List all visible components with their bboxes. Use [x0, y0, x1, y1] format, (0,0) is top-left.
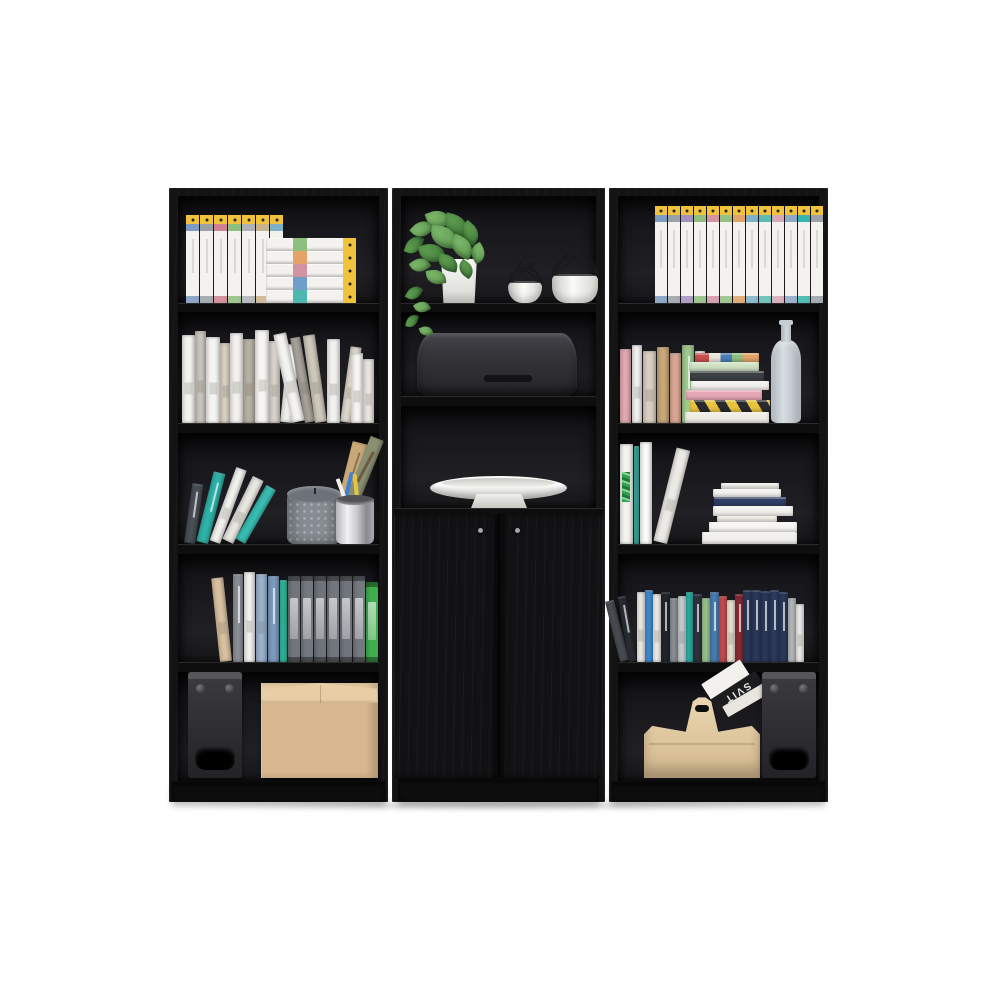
binder-label	[355, 598, 363, 639]
bookshelf-speaker-left	[188, 672, 242, 778]
book	[670, 598, 678, 662]
book-label	[185, 383, 192, 394]
book-label	[366, 394, 372, 405]
book-label	[233, 382, 240, 393]
bottle-vase	[771, 340, 801, 423]
binder-yellow-cap	[343, 277, 356, 290]
book-title-strip	[238, 586, 240, 623]
binder-foot-band	[228, 296, 241, 303]
stacked-book	[685, 412, 769, 423]
book	[182, 335, 195, 423]
book	[233, 574, 243, 662]
archive-binder	[733, 206, 745, 303]
archive-binder	[200, 215, 213, 303]
book	[620, 349, 631, 423]
binder-yellow-cap	[811, 206, 823, 215]
wire-vase-small	[505, 253, 545, 303]
wire-vase-large	[548, 236, 602, 303]
green-cover-art	[622, 472, 630, 502]
white-books-row	[182, 330, 374, 423]
binder-color-band	[242, 224, 255, 231]
shelf-board	[618, 662, 819, 672]
right-shelf-5: SVIT	[618, 672, 819, 781]
book	[195, 331, 206, 423]
binder-color-band	[655, 215, 667, 222]
speaker-knob	[196, 684, 205, 693]
binder-foot-band	[785, 296, 797, 303]
binder-color-band	[759, 215, 771, 222]
book-label	[639, 630, 643, 641]
binder-yellow-cap	[256, 215, 269, 224]
binder-foot-band	[759, 296, 771, 303]
book	[244, 572, 255, 662]
book-label	[635, 387, 640, 398]
book	[632, 345, 642, 423]
leaning-art-books	[620, 442, 667, 544]
book	[653, 594, 661, 662]
book-label	[330, 384, 337, 395]
white-book-stack	[702, 483, 797, 544]
stacked-book	[690, 400, 770, 412]
binder-color-band	[293, 264, 307, 277]
left-shelf-1	[178, 196, 379, 303]
binder-yellow-cap	[200, 215, 213, 224]
binder-label	[368, 602, 376, 640]
book	[670, 353, 681, 423]
center-bowl-alcove	[401, 406, 596, 508]
book	[645, 590, 653, 662]
shelf-board	[178, 662, 379, 672]
book-label	[272, 385, 278, 396]
book	[779, 592, 788, 662]
stacked-book	[686, 390, 762, 400]
bookcase-left	[169, 188, 388, 802]
book	[353, 576, 365, 662]
binder-spine	[694, 222, 706, 296]
archive-binder	[681, 206, 693, 303]
book	[727, 600, 735, 662]
book	[301, 576, 313, 662]
shelf-board	[178, 544, 379, 554]
binder-yellow-cap	[681, 206, 693, 215]
center-shelf-1	[401, 196, 596, 303]
stacked-book	[713, 489, 781, 497]
stacked-book	[714, 497, 786, 506]
candle-wick	[314, 488, 316, 494]
wire-dome	[505, 253, 545, 283]
soundbar-slot	[484, 375, 532, 382]
book-label	[223, 386, 228, 397]
book	[243, 339, 255, 423]
binder-color-band	[293, 290, 307, 303]
book	[327, 339, 340, 423]
binder-spine	[668, 222, 680, 296]
binder-yellow-cap	[694, 206, 706, 215]
stacked-book	[709, 522, 797, 532]
shelf-board	[618, 544, 819, 554]
book-label	[247, 621, 253, 632]
left-shelf-5	[178, 672, 379, 781]
book-title-strip	[774, 600, 776, 630]
binder-yellow-cap	[186, 215, 199, 224]
right-shelf-1	[618, 196, 819, 303]
stacked-book	[717, 516, 777, 522]
left-shelf-2	[178, 312, 379, 423]
binder-color-band	[785, 215, 797, 222]
book	[710, 592, 719, 662]
binder-spine	[307, 251, 343, 264]
binder-spine	[655, 222, 667, 296]
binder-spine	[214, 231, 227, 296]
binder-spine	[681, 222, 693, 296]
door-knob-right[interactable]	[515, 528, 520, 533]
binder-spine	[811, 222, 823, 296]
archive-binder	[668, 206, 680, 303]
binder-spine	[266, 290, 293, 303]
speaker-knob	[225, 684, 234, 693]
archive-binder	[772, 206, 784, 303]
binder-color-band	[681, 215, 693, 222]
binder-yellow-cap	[343, 251, 356, 264]
binder-foot-band	[798, 296, 810, 303]
book	[220, 343, 230, 423]
book	[314, 576, 326, 662]
binder-label	[303, 598, 311, 639]
book	[206, 337, 220, 423]
lying-archive-binder	[266, 238, 356, 251]
soundbar-speaker	[417, 333, 577, 396]
binder-yellow-cap	[270, 215, 283, 224]
binder-yellow-cap	[746, 206, 758, 215]
binder-foot-band	[811, 296, 823, 303]
binder-yellow-cap	[798, 206, 810, 215]
stacked-book	[702, 532, 797, 544]
binder-yellow-cap	[668, 206, 680, 215]
book-label	[312, 382, 319, 394]
binder-color-band	[293, 238, 307, 251]
book-title-strip	[714, 602, 716, 631]
book	[796, 604, 804, 662]
binder-spine	[307, 277, 343, 290]
binder-spine	[707, 222, 719, 296]
binder-spine	[200, 231, 213, 296]
archive-binder	[811, 206, 823, 303]
binder-foot-band	[655, 296, 667, 303]
stacked-book	[695, 353, 759, 362]
basket-handle-hole	[695, 705, 709, 713]
cup-opening	[336, 495, 374, 505]
binder-color-band	[256, 224, 269, 231]
speaker-top-strip	[188, 672, 242, 679]
book	[620, 444, 633, 544]
binder-label	[316, 598, 324, 639]
novel-row	[620, 590, 804, 662]
binder-yellow-cap	[228, 215, 241, 224]
shelf-board	[178, 423, 379, 433]
basket-plank-line	[649, 743, 756, 745]
binder-yellow-cap	[343, 264, 356, 277]
shelf-board	[618, 423, 819, 433]
binder-yellow-cap	[343, 238, 356, 251]
binder-foot-band	[720, 296, 732, 303]
book	[657, 347, 669, 423]
binder-spine	[266, 277, 293, 290]
binder-yellow-cap	[759, 206, 771, 215]
pothos-plant-foliage	[397, 210, 497, 340]
binder-spine	[720, 222, 732, 296]
archive-binder	[798, 206, 810, 303]
book-label	[798, 635, 802, 646]
speaker-driver	[766, 698, 812, 744]
book	[366, 582, 378, 662]
book	[637, 592, 645, 662]
binder-foot-band	[668, 296, 680, 303]
book	[693, 594, 702, 662]
book	[351, 353, 363, 423]
book-label	[729, 633, 733, 644]
binder-foot-band	[733, 296, 745, 303]
binder-yellow-cap	[733, 206, 745, 215]
binder-spine	[266, 251, 293, 264]
binder-spine	[307, 264, 343, 277]
left-shelf-4	[178, 554, 379, 662]
binder-spine	[266, 238, 293, 251]
book-label	[234, 511, 244, 524]
book-label	[680, 632, 684, 643]
binder-spine	[266, 264, 293, 277]
book-label	[301, 383, 308, 395]
book	[752, 590, 761, 662]
archive-binder	[655, 206, 667, 303]
book	[363, 359, 374, 423]
binder-color-band	[214, 224, 227, 231]
archive-binder	[720, 206, 732, 303]
book-title-strip	[623, 605, 630, 633]
book	[770, 590, 779, 662]
book	[255, 330, 269, 423]
book-label	[259, 380, 266, 391]
book-label	[219, 623, 226, 635]
book	[211, 577, 232, 662]
binder-yellow-cap	[214, 215, 227, 224]
book-label	[287, 380, 296, 392]
book	[643, 351, 656, 423]
book-label	[354, 391, 360, 402]
book-title-strip	[747, 600, 749, 630]
binder-color-band	[720, 215, 732, 222]
binder-yellow-cap	[655, 206, 667, 215]
book-label	[259, 622, 265, 633]
right-shelf-4	[618, 554, 819, 662]
cabinet-door-left[interactable]	[394, 514, 498, 778]
binder-color-band	[707, 215, 719, 222]
binder-color-band	[746, 215, 758, 222]
binder-color-band	[228, 224, 241, 231]
kraft-box	[261, 683, 378, 778]
book	[640, 442, 652, 544]
binder-yellow-cap	[242, 215, 255, 224]
book	[653, 447, 690, 544]
binder-color-band	[293, 277, 307, 290]
book-title-strip	[765, 601, 767, 631]
binder-color-band	[200, 224, 213, 231]
book	[340, 576, 352, 662]
binder-yellow-cap	[720, 206, 732, 215]
lying-archive-binder	[266, 277, 356, 290]
speaker-knob	[770, 684, 779, 693]
archive-binder	[759, 206, 771, 303]
book-title-strip	[783, 602, 785, 631]
binder-spine	[772, 222, 784, 296]
speaker-driver	[192, 698, 238, 744]
shelf-board	[618, 303, 819, 312]
book	[256, 574, 267, 662]
binder-color-band	[798, 215, 810, 222]
lying-archive-binder	[266, 251, 356, 264]
book-label	[665, 499, 674, 511]
binder-spine	[798, 222, 810, 296]
binder-color-band	[733, 215, 745, 222]
book	[788, 598, 796, 662]
book	[686, 592, 693, 662]
book-label	[210, 383, 217, 394]
shelf-board	[178, 303, 379, 312]
binder-books-row	[220, 572, 378, 662]
right-shelf-3	[618, 433, 819, 544]
book-title-strip	[209, 482, 218, 512]
lying-archive-binder	[266, 264, 356, 277]
bookshelf-speaker-right	[762, 672, 816, 778]
lying-archive-binder	[266, 290, 356, 303]
book-title-strip	[697, 604, 699, 633]
binder-foot-band	[186, 296, 199, 303]
book	[719, 596, 727, 662]
pedestal-bowl-inner	[442, 478, 555, 488]
speaker-knob	[799, 684, 808, 693]
stacked-book	[690, 371, 764, 381]
binder-spine	[785, 222, 797, 296]
bookcase-center-cabinet	[392, 188, 605, 802]
cabinet-doors	[394, 514, 603, 778]
speaker-port	[769, 746, 809, 770]
binder-spine	[242, 231, 255, 296]
binder-color-band	[186, 224, 199, 231]
book-title-strip	[665, 602, 667, 631]
leaning-books	[184, 466, 245, 544]
binder-label	[290, 598, 298, 639]
binder-yellow-cap	[785, 206, 797, 215]
chrome-pencil-cup	[336, 500, 374, 544]
book	[661, 592, 670, 662]
left-shelf-3	[178, 433, 379, 544]
book	[230, 333, 243, 423]
book-label	[198, 381, 204, 392]
binder-color-band	[668, 215, 680, 222]
product-photo-stage: SVIT	[0, 0, 1000, 1000]
binder-spine	[186, 231, 199, 296]
book-label	[655, 631, 659, 642]
binder-foot-band	[214, 296, 227, 303]
book	[678, 596, 686, 662]
shelf-board	[401, 396, 596, 406]
speaker-port	[195, 746, 235, 770]
door-knob-left[interactable]	[478, 528, 483, 533]
binder-foot-band	[772, 296, 784, 303]
book	[735, 594, 743, 662]
binder-spine	[759, 222, 771, 296]
book	[288, 576, 300, 662]
binder-foot-band	[746, 296, 758, 303]
wire-dome	[548, 236, 602, 276]
book-title-strip	[193, 492, 198, 517]
book-title-strip	[756, 600, 758, 630]
binder-foot-band	[707, 296, 719, 303]
book-label	[646, 390, 653, 401]
binder-spine	[307, 238, 343, 251]
binder-foot-band	[242, 296, 255, 303]
archive-binder	[694, 206, 706, 303]
speaker-top-strip	[762, 672, 816, 679]
binder-foot-band	[200, 296, 213, 303]
book	[280, 580, 287, 662]
book-label	[246, 384, 252, 395]
binder-yellow-cap	[707, 206, 719, 215]
pedestal-bowl-foot	[471, 494, 527, 508]
archive-binders-row	[655, 206, 823, 303]
binder-color-band	[270, 224, 283, 231]
archive-binder	[214, 215, 227, 303]
archive-binder	[746, 206, 758, 303]
binder-foot-band	[694, 296, 706, 303]
binder-foot-band	[681, 296, 693, 303]
binder-spine	[228, 231, 241, 296]
book	[634, 446, 639, 544]
book	[268, 576, 279, 662]
archive-binder	[785, 206, 797, 303]
floor-shadow	[180, 799, 820, 811]
archive-binders-stacked	[266, 238, 356, 303]
binder-yellow-cap	[772, 206, 784, 215]
stacked-book	[689, 362, 759, 371]
box-seam	[320, 685, 321, 703]
cabinet-door-right[interactable]	[500, 514, 604, 778]
binder-spine	[307, 290, 343, 303]
book-title-strip	[273, 588, 275, 624]
binder-spine	[733, 222, 745, 296]
right-shelf-2	[618, 312, 819, 423]
archive-binder	[707, 206, 719, 303]
binder-color-band	[293, 251, 307, 264]
binder-yellow-cap	[343, 290, 356, 303]
binder-label	[329, 598, 337, 639]
book	[761, 591, 770, 662]
stacked-book	[691, 381, 769, 390]
archive-binder	[228, 215, 241, 303]
bookcase-right: SVIT	[609, 188, 828, 802]
binder-color-band	[694, 215, 706, 222]
archive-binder	[242, 215, 255, 303]
stacked-book	[713, 506, 793, 516]
binder-spine	[746, 222, 758, 296]
binder-label	[342, 598, 350, 639]
book-label	[221, 507, 230, 519]
book	[743, 590, 752, 662]
book	[702, 598, 710, 662]
archive-binder	[186, 215, 199, 303]
book-title-strip	[739, 604, 741, 633]
book-stack	[685, 353, 769, 423]
dotted-candle	[287, 494, 341, 544]
